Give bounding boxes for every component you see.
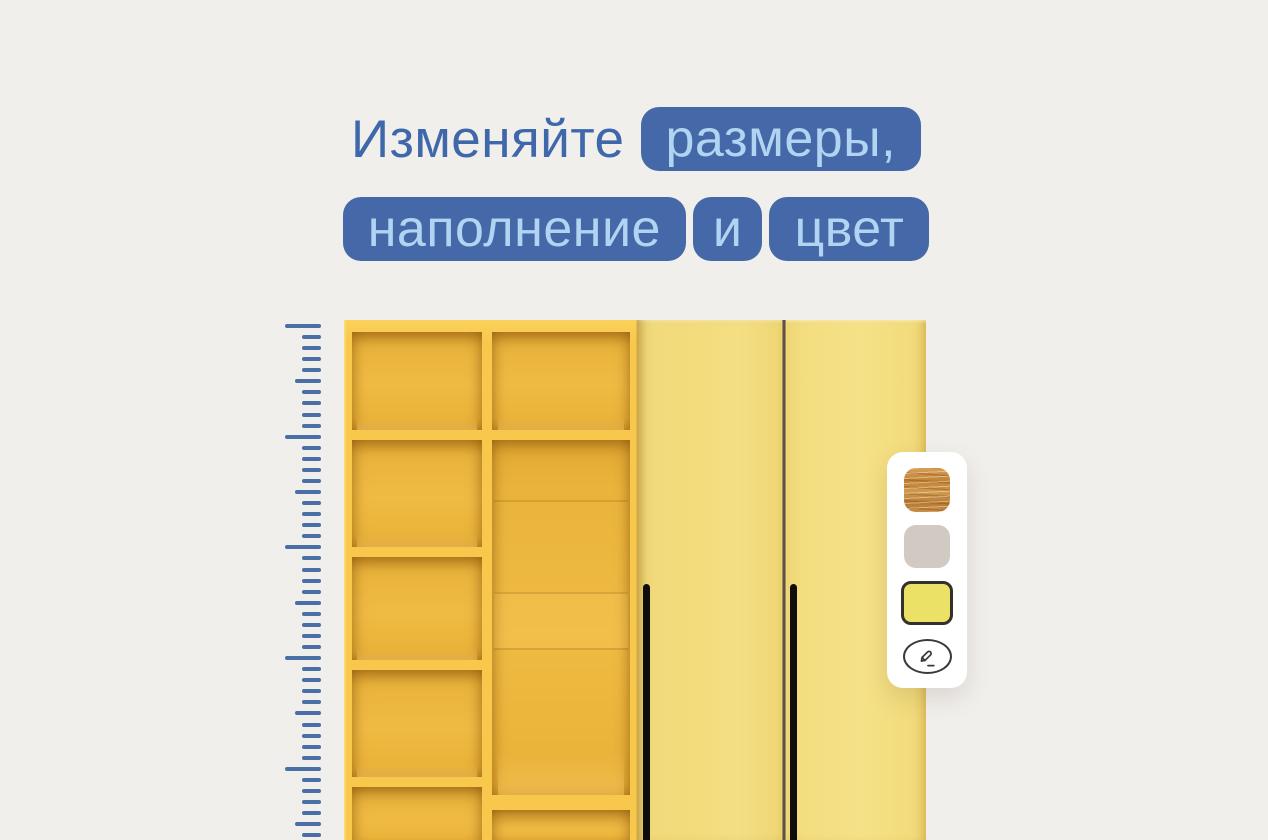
gray-color-swatch[interactable] xyxy=(904,525,950,568)
door-handle-right xyxy=(790,584,797,840)
ruler-tick-short xyxy=(302,811,321,815)
ruler-tick-short xyxy=(302,446,321,450)
ruler-tick-short xyxy=(302,678,321,682)
shelf-compartment xyxy=(492,810,630,840)
headline-badge-filling: наполнение xyxy=(343,197,686,261)
color-palette-panel xyxy=(887,452,967,688)
ruler-tick-short xyxy=(302,590,321,594)
ruler-tick-short xyxy=(302,800,321,804)
ruler-tick-major xyxy=(285,545,321,549)
pencil-icon xyxy=(914,645,941,669)
ruler-tick-short xyxy=(302,612,321,616)
ruler-tick-short xyxy=(302,512,321,516)
ruler-tick-medium xyxy=(295,490,321,494)
ruler-tick-short xyxy=(302,479,321,483)
ruler-tick-medium xyxy=(295,379,321,383)
ruler-tick-short xyxy=(302,346,321,350)
shelf-compartment xyxy=(352,670,482,777)
ruler-tick-short xyxy=(302,390,321,394)
ruler-tick-major xyxy=(285,435,321,439)
shelf-compartment xyxy=(352,557,482,660)
shelf-compartment xyxy=(352,440,482,547)
shelf-back-seam xyxy=(494,592,628,594)
ruler-tick-short xyxy=(302,623,321,627)
ruler-tick-short xyxy=(302,457,321,461)
ruler xyxy=(285,324,321,840)
ruler-tick-major xyxy=(285,324,321,328)
wood-color-swatch[interactable] xyxy=(904,468,950,512)
ruler-tick-short xyxy=(302,468,321,472)
ruler-tick-short xyxy=(302,357,321,361)
shelf-compartment xyxy=(352,332,482,430)
ruler-tick-short xyxy=(302,413,321,417)
door-handle-left xyxy=(643,584,650,840)
ruler-tick-short xyxy=(302,501,321,505)
ruler-tick-short xyxy=(302,778,321,782)
ruler-tick-short xyxy=(302,833,321,837)
wardrobe-open-shelving xyxy=(344,320,637,840)
ruler-tick-short xyxy=(302,523,321,527)
edit-color-button[interactable] xyxy=(903,639,952,674)
ruler-tick-short xyxy=(302,634,321,638)
ruler-tick-short xyxy=(302,556,321,560)
ruler-tick-short xyxy=(302,723,321,727)
headline-line-2: наполнение и цвет xyxy=(356,196,916,262)
ruler-tick-short xyxy=(302,335,321,339)
headline-line-1: Изменяйте размеры, xyxy=(356,106,916,172)
shelf-back-seam xyxy=(494,648,628,650)
ruler-tick-short xyxy=(302,424,321,428)
shelf-compartment-tall xyxy=(492,440,630,795)
wardrobe-door-left xyxy=(637,320,782,840)
wardrobe-preview xyxy=(344,320,926,840)
ruler-tick-short xyxy=(302,534,321,538)
ruler-tick-medium xyxy=(295,711,321,715)
ruler-tick-short xyxy=(302,689,321,693)
shelf-compartment xyxy=(352,787,482,840)
yellow-color-swatch-selected[interactable] xyxy=(901,581,953,625)
ruler-tick-short xyxy=(302,789,321,793)
shelf-back-seam xyxy=(494,500,628,502)
ruler-tick-short xyxy=(302,745,321,749)
ruler-tick-major xyxy=(285,656,321,660)
ruler-tick-short xyxy=(302,401,321,405)
ruler-tick-medium xyxy=(295,601,321,605)
ruler-tick-short xyxy=(302,368,321,372)
ruler-tick-short xyxy=(302,645,321,649)
headline: Изменяйте размеры, наполнение и цвет xyxy=(356,106,916,262)
ruler-tick-short xyxy=(302,756,321,760)
promo-canvas: Изменяйте размеры, наполнение и цвет xyxy=(0,0,1268,840)
ruler-tick-short xyxy=(302,667,321,671)
ruler-tick-short xyxy=(302,734,321,738)
shelf-back-panel xyxy=(494,592,628,648)
headline-badge-sizes: размеры, xyxy=(641,107,922,171)
headline-badge-color: цвет xyxy=(769,197,929,261)
headline-text: Изменяйте xyxy=(351,109,625,170)
ruler-tick-medium xyxy=(295,822,321,826)
ruler-tick-short xyxy=(302,700,321,704)
ruler-tick-major xyxy=(285,767,321,771)
headline-badge-and: и xyxy=(693,197,763,261)
ruler-tick-short xyxy=(302,579,321,583)
ruler-tick-short xyxy=(302,568,321,572)
shelf-compartment xyxy=(492,332,630,430)
